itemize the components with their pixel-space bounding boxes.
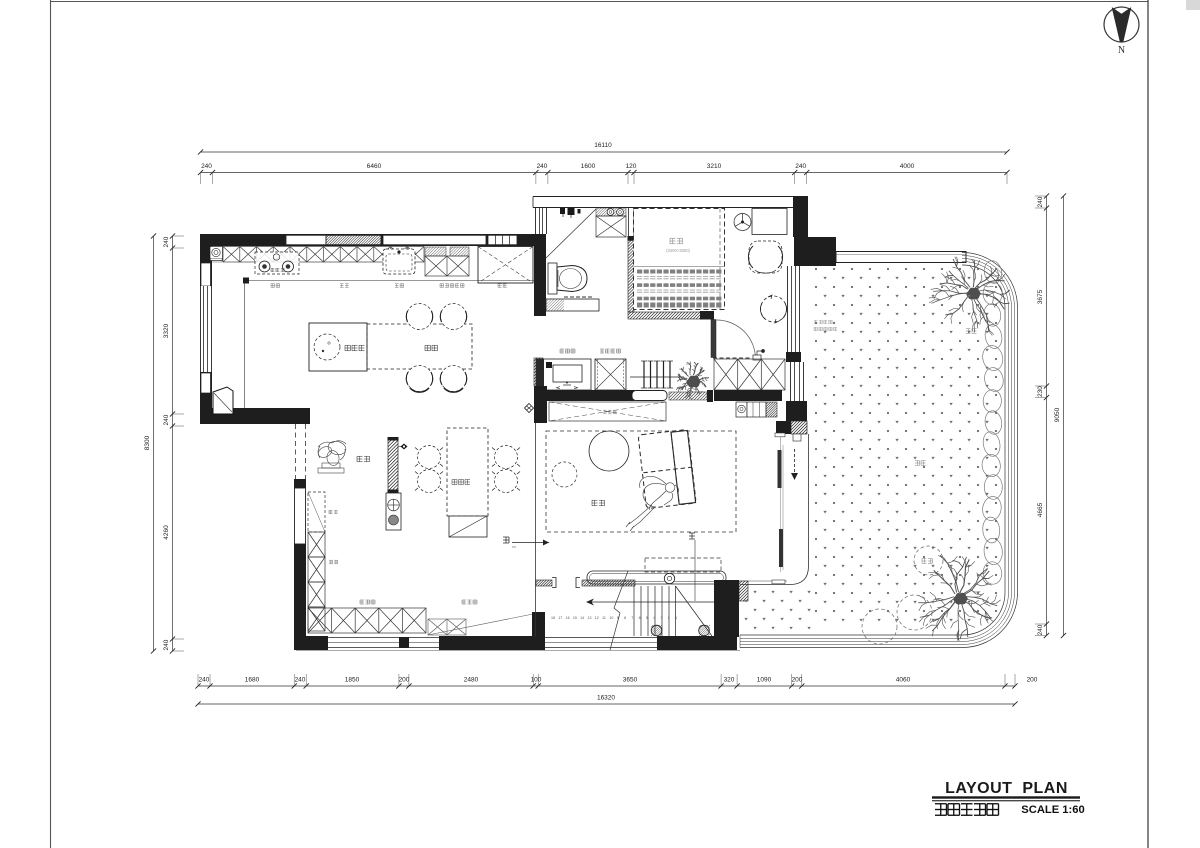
svg-text:3650: 3650 — [623, 677, 638, 684]
svg-text:8: 8 — [624, 616, 626, 620]
svg-text:9050: 9050 — [1054, 407, 1061, 422]
svg-text:200: 200 — [1027, 677, 1038, 684]
svg-text:18: 18 — [551, 616, 555, 620]
svg-text:1680: 1680 — [245, 677, 260, 684]
svg-text:3: 3 — [661, 616, 663, 620]
svg-text:7: 7 — [631, 616, 633, 620]
svg-text:6: 6 — [639, 616, 641, 620]
svg-text:1090: 1090 — [757, 677, 772, 684]
svg-text:12: 12 — [595, 616, 599, 620]
svg-text:230: 230 — [1037, 386, 1044, 397]
svg-text:17: 17 — [558, 616, 562, 620]
svg-text:200: 200 — [399, 677, 410, 684]
svg-text:240: 240 — [201, 163, 212, 170]
svg-text:1: 1 — [675, 616, 677, 620]
svg-text:2: 2 — [668, 616, 670, 620]
svg-text:16: 16 — [566, 616, 570, 620]
svg-text:1600: 1600 — [581, 163, 596, 170]
svg-text:240: 240 — [163, 414, 170, 425]
svg-text:120: 120 — [626, 163, 637, 170]
svg-text:3675: 3675 — [1037, 289, 1044, 304]
svg-text:240: 240 — [1037, 624, 1044, 635]
svg-text:240: 240 — [199, 677, 210, 684]
svg-text:14: 14 — [580, 616, 584, 620]
svg-text:1850: 1850 — [345, 677, 360, 684]
svg-text:4060: 4060 — [896, 677, 911, 684]
svg-text:3210: 3210 — [707, 163, 722, 170]
svg-text:8300: 8300 — [144, 435, 151, 450]
svg-text:11: 11 — [602, 616, 606, 620]
svg-text:2480: 2480 — [464, 677, 479, 684]
svg-text:SCALE 1:60: SCALE 1:60 — [1021, 804, 1084, 816]
svg-text:5: 5 — [646, 616, 648, 620]
svg-text:15: 15 — [573, 616, 577, 620]
svg-text:240: 240 — [795, 163, 806, 170]
svg-text:4000: 4000 — [900, 163, 915, 170]
svg-text:16320: 16320 — [597, 695, 615, 702]
svg-text:240: 240 — [163, 236, 170, 247]
svg-text:13: 13 — [588, 616, 592, 620]
svg-text:240: 240 — [537, 163, 548, 170]
svg-text:320: 320 — [724, 677, 735, 684]
svg-text:3320: 3320 — [163, 323, 170, 338]
svg-text:240: 240 — [295, 677, 306, 684]
svg-text:10: 10 — [609, 616, 613, 620]
svg-text:4665: 4665 — [1037, 502, 1044, 517]
svg-text:4: 4 — [653, 616, 655, 620]
svg-text:200: 200 — [792, 677, 803, 684]
svg-text:240: 240 — [1037, 196, 1044, 207]
svg-text:4260: 4260 — [163, 525, 170, 540]
svg-text:6460: 6460 — [367, 163, 382, 170]
svg-text:100: 100 — [531, 677, 542, 684]
svg-text:240: 240 — [163, 639, 170, 650]
svg-text:LAYOUT PLAN: LAYOUT PLAN — [945, 780, 1068, 797]
svg-text:16110: 16110 — [594, 142, 612, 149]
svg-text:(3400×2800): (3400×2800) — [666, 248, 690, 253]
svg-text:N: N — [1118, 45, 1125, 56]
